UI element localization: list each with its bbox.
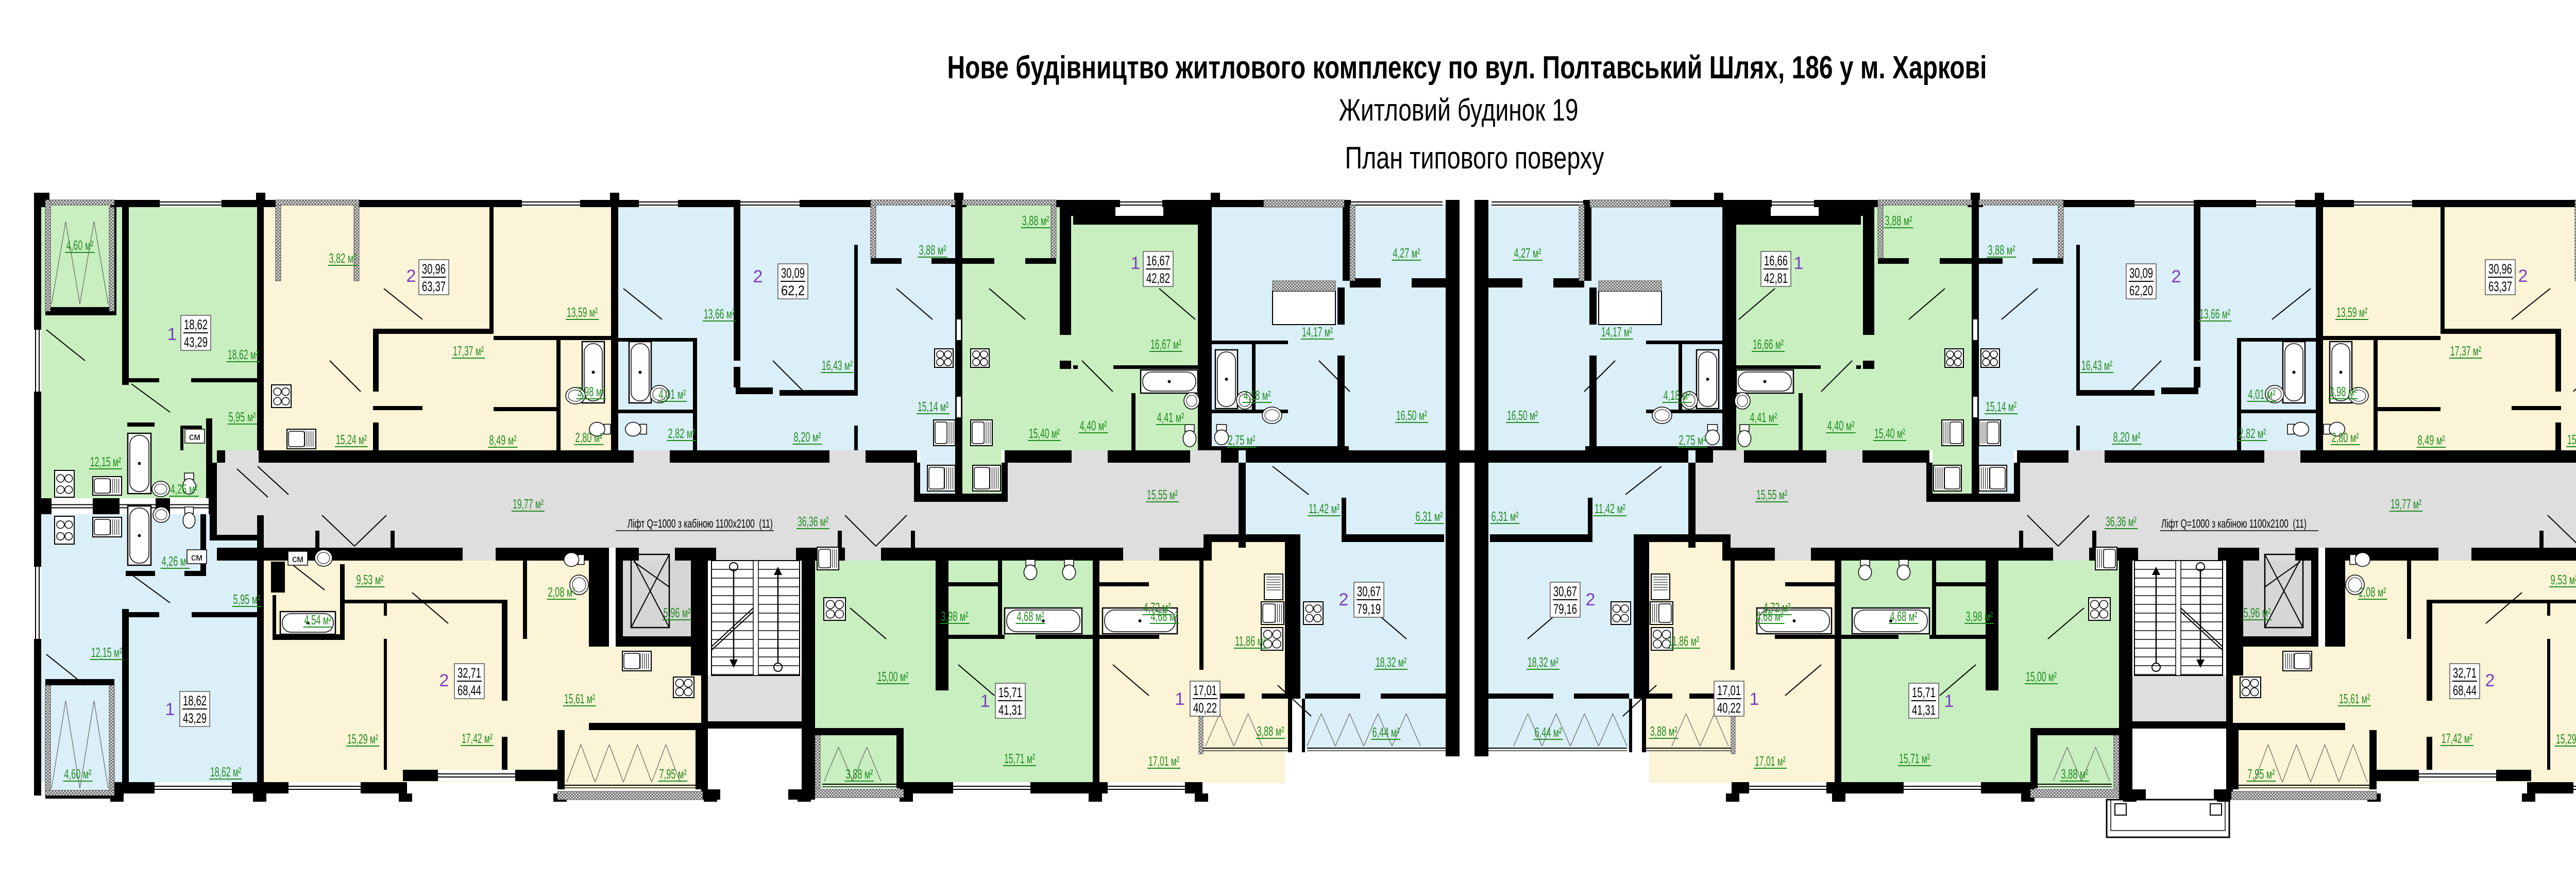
svg-text:68,44: 68,44 — [457, 683, 481, 698]
svg-text:30,67: 30,67 — [1553, 584, 1577, 599]
svg-text:5,96 м²: 5,96 м² — [664, 605, 691, 620]
svg-text:14,17 м²: 14,17 м² — [1302, 324, 1333, 340]
svg-text:63,37: 63,37 — [2488, 279, 2512, 294]
svg-text:16,43 м²: 16,43 м² — [822, 358, 853, 373]
svg-text:11,42 м²: 11,42 м² — [1309, 501, 1340, 516]
svg-text:12,15 м²: 12,15 м² — [90, 454, 121, 469]
svg-text:15,24 м²: 15,24 м² — [2567, 432, 2576, 447]
svg-text:4,40 м²: 4,40 м² — [1080, 418, 1107, 433]
svg-text:15,29 м²: 15,29 м² — [347, 731, 378, 747]
svg-text:11,86 м²: 11,86 м² — [1668, 633, 1699, 649]
svg-text:2,82 м²: 2,82 м² — [668, 426, 696, 441]
svg-text:9,53 м²: 9,53 м² — [357, 572, 384, 587]
svg-text:4,54 м²: 4,54 м² — [304, 612, 332, 628]
svg-text:17,42 м²: 17,42 м² — [462, 731, 493, 746]
svg-text:1: 1 — [1131, 253, 1141, 273]
svg-text:3,88 м²: 3,88 м² — [846, 766, 873, 782]
svg-text:1: 1 — [165, 700, 175, 719]
svg-text:5,96 м²: 5,96 м² — [2244, 605, 2271, 620]
svg-text:4,18 м²: 4,18 м² — [1244, 387, 1271, 403]
svg-text:36,36 м²: 36,36 м² — [798, 514, 828, 529]
svg-text:7,95 м²: 7,95 м² — [659, 766, 687, 782]
svg-text:3,88 м²: 3,88 м² — [919, 242, 946, 258]
svg-text:15,40 м²: 15,40 м² — [1874, 426, 1905, 441]
svg-text:15,71 м²: 15,71 м² — [1899, 751, 1930, 766]
svg-text:15,55 м²: 15,55 м² — [1147, 487, 1178, 502]
svg-text:7,95 м²: 7,95 м² — [2248, 766, 2275, 782]
svg-text:19,77 м²: 19,77 м² — [513, 496, 544, 512]
svg-text:4,60 м²: 4,60 м² — [64, 766, 92, 782]
svg-text:17,37 м²: 17,37 м² — [453, 343, 484, 359]
svg-text:15,14 м²: 15,14 м² — [918, 399, 948, 414]
svg-text:30,96: 30,96 — [422, 261, 446, 277]
svg-text:15,24 м²: 15,24 м² — [336, 432, 367, 447]
svg-text:4,26 м²: 4,26 м² — [171, 481, 198, 497]
svg-text:2,80 м²: 2,80 м² — [575, 430, 603, 445]
svg-text:4,72 м²: 4,72 м² — [1764, 600, 1791, 615]
svg-text:4,68 м²: 4,68 м² — [1890, 608, 1918, 624]
svg-text:30,09: 30,09 — [781, 265, 805, 281]
svg-text:11,42 м²: 11,42 м² — [1595, 501, 1625, 516]
svg-text:2: 2 — [2172, 267, 2181, 286]
svg-text:16,67 м²: 16,67 м² — [1150, 336, 1181, 352]
svg-text:2,08 м²: 2,08 м² — [548, 584, 575, 600]
svg-text:4,27 м²: 4,27 м² — [1393, 245, 1420, 261]
svg-text:4,26 м²: 4,26 м² — [162, 553, 189, 569]
svg-text:2: 2 — [2485, 671, 2495, 690]
svg-text:см: см — [292, 554, 303, 565]
svg-text:План типового поверху: План типового поверху — [1345, 141, 1604, 175]
svg-text:17,42 м²: 17,42 м² — [2442, 731, 2472, 746]
svg-text:16,43 м²: 16,43 м² — [2081, 358, 2112, 373]
svg-text:Нове будівництво житлового ком: Нове будівництво житлового комплексу по … — [947, 50, 1987, 86]
svg-text:43,29: 43,29 — [184, 334, 208, 350]
svg-text:40,22: 40,22 — [1193, 700, 1217, 716]
svg-text:16,50 м²: 16,50 м² — [1396, 408, 1427, 423]
svg-text:3,98 м²: 3,98 м² — [2330, 384, 2357, 399]
svg-text:3,82 м²: 3,82 м² — [329, 250, 357, 266]
svg-text:18,62 м²: 18,62 м² — [228, 347, 259, 362]
svg-text:3,98 м²: 3,98 м² — [578, 384, 605, 399]
svg-text:32,71: 32,71 — [457, 665, 481, 681]
svg-text:4,01 м²: 4,01 м² — [659, 386, 686, 402]
svg-text:63,37: 63,37 — [422, 279, 446, 294]
svg-text:18,62 м²: 18,62 м² — [210, 764, 241, 780]
svg-text:42,82: 42,82 — [1146, 271, 1170, 286]
svg-text:18,62: 18,62 — [183, 693, 207, 708]
svg-text:6,31 м²: 6,31 м² — [1492, 509, 1519, 524]
svg-text:15,71: 15,71 — [998, 685, 1022, 700]
svg-text:18,32 м²: 18,32 м² — [1528, 654, 1558, 670]
svg-text:15,00 м²: 15,00 м² — [2026, 669, 2057, 684]
svg-text:см: см — [189, 432, 200, 443]
svg-text:30,96: 30,96 — [2488, 261, 2512, 277]
svg-text:13,59 м²: 13,59 м² — [2336, 305, 2367, 320]
svg-text:15,61 м²: 15,61 м² — [564, 691, 595, 706]
svg-text:18,62: 18,62 — [184, 317, 208, 332]
svg-text:19,77 м²: 19,77 м² — [2391, 496, 2421, 512]
svg-text:4,41 м²: 4,41 м² — [1750, 410, 1777, 425]
svg-text:18,32 м²: 18,32 м² — [1376, 654, 1406, 670]
svg-text:3,88 м²: 3,88 м² — [2061, 766, 2089, 782]
svg-text:36,36 м²: 36,36 м² — [2106, 514, 2137, 529]
svg-text:4,60 м²: 4,60 м² — [66, 238, 94, 253]
svg-text:42,81: 42,81 — [1764, 271, 1788, 286]
svg-text:1: 1 — [1175, 689, 1185, 709]
svg-text:2: 2 — [1586, 590, 1596, 610]
svg-text:8,20 м²: 8,20 м² — [794, 429, 821, 445]
svg-text:3,98 м²: 3,98 м² — [1966, 608, 1993, 624]
svg-text:9,53 м²: 9,53 м² — [2551, 572, 2576, 587]
svg-text:3,98 м²: 3,98 м² — [941, 608, 969, 624]
svg-text:3,88 м²: 3,88 м² — [1650, 723, 1677, 739]
svg-text:41,31: 41,31 — [998, 702, 1022, 718]
svg-text:13,66 м²: 13,66 м² — [2199, 306, 2230, 322]
svg-text:15,61 м²: 15,61 м² — [2339, 691, 2370, 706]
svg-text:30,67: 30,67 — [1357, 584, 1381, 599]
svg-text:17,01 м²: 17,01 м² — [1148, 753, 1179, 769]
svg-text:4,18 м²: 4,18 м² — [1664, 387, 1691, 403]
svg-text:4,41 м²: 4,41 м² — [1157, 410, 1184, 425]
svg-text:4,68 м²: 4,68 м² — [1017, 608, 1044, 624]
svg-text:3,88 м²: 3,88 м² — [1988, 242, 2015, 258]
svg-text:16,67: 16,67 — [1146, 253, 1170, 268]
svg-text:40,22: 40,22 — [1717, 700, 1741, 716]
svg-text:5,95 м²: 5,95 м² — [233, 591, 261, 607]
svg-text:68,44: 68,44 — [2453, 683, 2477, 698]
svg-text:15,29 м²: 15,29 м² — [2556, 731, 2576, 747]
svg-text:1: 1 — [1944, 691, 1954, 711]
svg-text:12,15 м²: 12,15 м² — [91, 645, 122, 660]
svg-text:2: 2 — [406, 266, 416, 286]
svg-text:2: 2 — [439, 671, 449, 690]
svg-text:6,44 м²: 6,44 м² — [1372, 724, 1400, 740]
svg-text:8,49 м²: 8,49 м² — [489, 432, 517, 448]
svg-text:32,71: 32,71 — [2453, 665, 2477, 681]
svg-text:1: 1 — [1750, 689, 1759, 709]
svg-text:16,66 м²: 16,66 м² — [1753, 336, 1784, 352]
svg-text:15,14 м²: 15,14 м² — [1986, 399, 2016, 414]
svg-text:2,75 м²: 2,75 м² — [1228, 432, 1256, 448]
svg-text:30,09: 30,09 — [2129, 265, 2153, 281]
svg-text:16,66: 16,66 — [1764, 253, 1788, 268]
svg-text:5,95 м²: 5,95 м² — [229, 409, 256, 425]
svg-text:17,01: 17,01 — [1193, 683, 1217, 698]
svg-text:15,40 м²: 15,40 м² — [1029, 426, 1060, 441]
svg-text:13,59 м²: 13,59 м² — [567, 305, 598, 320]
svg-text:43,29: 43,29 — [183, 711, 207, 726]
svg-text:Житловий будинок 19: Житловий будинок 19 — [1339, 93, 1579, 127]
svg-text:3,88 м²: 3,88 м² — [1257, 723, 1284, 739]
svg-text:4,01 м²: 4,01 м² — [2248, 386, 2276, 402]
svg-text:15,00 м²: 15,00 м² — [877, 669, 908, 684]
svg-text:Ліфт Q=1000 з кабіною 1100х210: Ліфт Q=1000 з кабіною 1100х2100 (11) — [2161, 517, 2307, 530]
svg-text:4,40 м²: 4,40 м² — [1827, 418, 1855, 433]
svg-text:41,31: 41,31 — [1912, 702, 1936, 718]
svg-text:3,88 м²: 3,88 м² — [1022, 213, 1049, 228]
svg-text:2: 2 — [1339, 590, 1349, 610]
svg-text:1: 1 — [980, 691, 990, 711]
svg-text:62,20: 62,20 — [2129, 283, 2153, 298]
svg-text:4,27 м²: 4,27 м² — [1514, 245, 1541, 261]
svg-text:16,50 м²: 16,50 м² — [1507, 408, 1538, 423]
svg-text:6,44 м²: 6,44 м² — [1535, 724, 1562, 740]
svg-text:15,55 м²: 15,55 м² — [1756, 487, 1787, 502]
svg-text:17,01: 17,01 — [1717, 683, 1741, 698]
svg-text:2,80 м²: 2,80 м² — [2332, 430, 2359, 445]
svg-text:2: 2 — [2518, 266, 2528, 286]
svg-text:17,37 м²: 17,37 м² — [2450, 343, 2481, 359]
svg-text:4,72 м²: 4,72 м² — [1144, 600, 1171, 615]
svg-text:13,66 м²: 13,66 м² — [704, 306, 735, 322]
svg-text:14,17 м²: 14,17 м² — [1601, 324, 1632, 340]
svg-text:15,71 м²: 15,71 м² — [1004, 751, 1035, 766]
svg-text:8,49 м²: 8,49 м² — [2418, 432, 2445, 448]
svg-text:79,16: 79,16 — [1553, 601, 1577, 617]
svg-text:17,01 м²: 17,01 м² — [1755, 753, 1786, 769]
svg-text:11,86 м²: 11,86 м² — [1235, 633, 1266, 649]
svg-text:6,31 м²: 6,31 м² — [1416, 509, 1443, 524]
svg-text:62,2: 62,2 — [781, 283, 805, 298]
svg-text:8,20 м²: 8,20 м² — [2113, 429, 2141, 445]
svg-text:15,71: 15,71 — [1912, 685, 1936, 700]
svg-text:см: см — [191, 552, 202, 563]
svg-text:Ліфт Q=1000 з кабіною 1100х210: Ліфт Q=1000 з кабіною 1100х2100 (11) — [628, 517, 773, 530]
svg-text:1: 1 — [1794, 253, 1804, 273]
svg-text:2: 2 — [753, 267, 763, 286]
svg-text:2,75 м²: 2,75 м² — [1679, 432, 1706, 448]
svg-text:1: 1 — [167, 325, 177, 344]
svg-text:2,08 м²: 2,08 м² — [2359, 584, 2386, 600]
svg-text:3,88 м²: 3,88 м² — [1885, 213, 1912, 228]
svg-text:2,82 м²: 2,82 м² — [2239, 426, 2266, 441]
svg-text:79,19: 79,19 — [1357, 601, 1381, 617]
